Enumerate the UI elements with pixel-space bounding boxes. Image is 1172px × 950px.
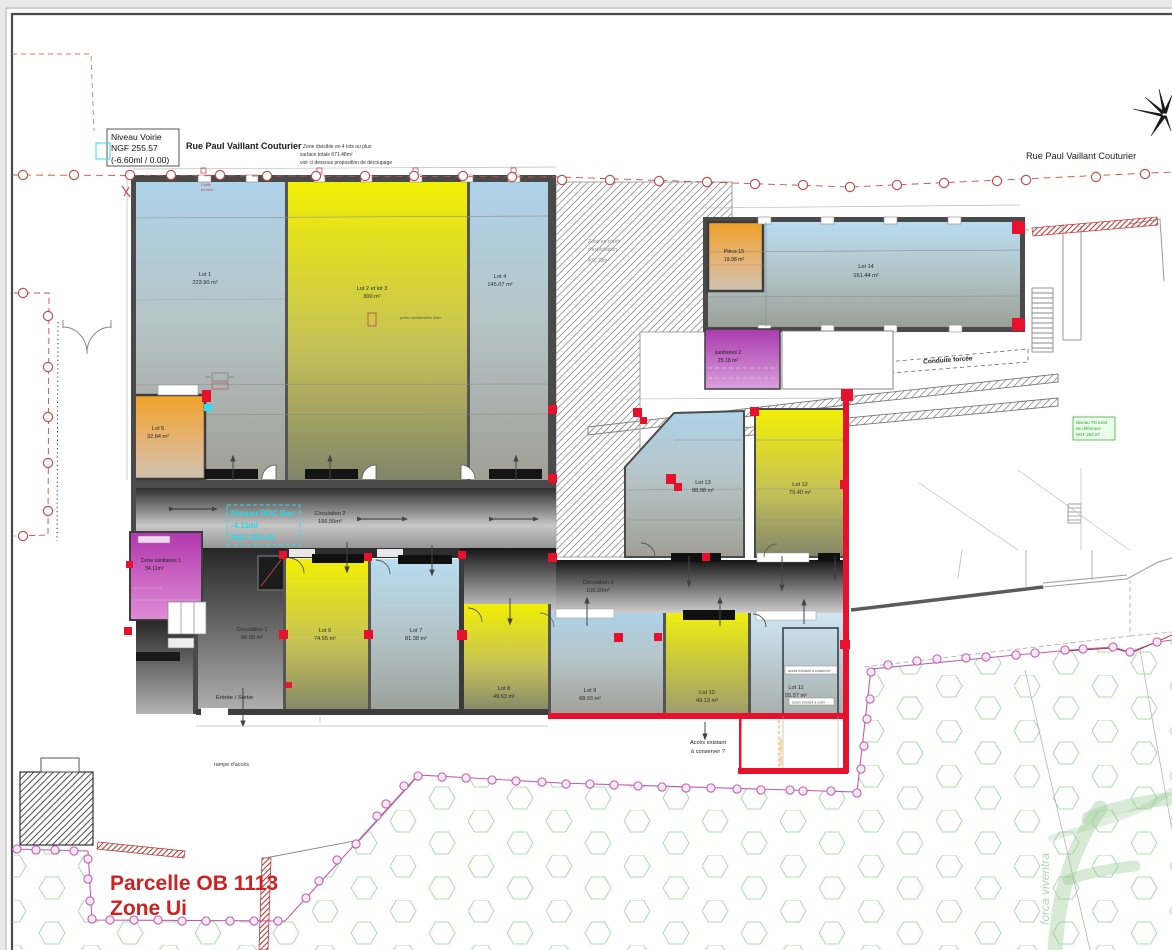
svg-text:Zone Ui: Zone Ui: [110, 897, 187, 920]
svg-text:NGF 259.46: NGF 259.46: [231, 533, 275, 542]
svg-text:166.50m²: 166.50m²: [318, 519, 342, 525]
svg-text:Lot 4: Lot 4: [494, 274, 506, 280]
svg-text:55.57 m²: 55.57 m²: [785, 693, 807, 699]
svg-text:-4.11ml: -4.11ml: [231, 521, 258, 530]
svg-text:145.07 m²: 145.07 m²: [487, 282, 512, 288]
svg-text:300 m²: 300 m²: [363, 294, 381, 300]
svg-text:Lot 12: Lot 12: [792, 482, 808, 488]
svg-text:471.73m²: 471.73m²: [588, 258, 609, 264]
svg-text:88.98 m²: 88.98 m²: [692, 488, 714, 494]
svg-text:Niveau RDC Bas: Niveau RDC Bas: [231, 509, 296, 518]
svg-text:Niveau Voirie: Niveau Voirie: [111, 132, 162, 142]
svg-text:223.90 m²: 223.90 m²: [192, 280, 217, 286]
svg-text:voir ci dessous proposition de: voir ci dessous proposition de découpage: [300, 160, 392, 166]
svg-text:Lot 10: Lot 10: [699, 690, 715, 696]
svg-text:d'exploitation: d'exploitation: [588, 247, 617, 253]
svg-text:accès existant à créer: accès existant à créer: [792, 701, 826, 705]
svg-text:Parcelle OB 1113: Parcelle OB 1113: [110, 872, 278, 895]
svg-text:Rue Paul Vaillant Couturier: Rue Paul Vaillant Couturier: [1026, 151, 1136, 161]
svg-text:Circulation 3: Circulation 3: [582, 580, 613, 586]
svg-text:161.44 m²: 161.44 m²: [853, 273, 878, 279]
svg-text:Lot 2 et lot 3: Lot 2 et lot 3: [357, 286, 388, 292]
svg-text:Zone divisible en 4 lots ou pl: Zone divisible en 4 lots ou plus: [303, 144, 372, 150]
svg-text:sanitaires 2: sanitaires 2: [715, 350, 742, 356]
svg-text:Circulation 1: Circulation 1: [236, 627, 267, 633]
svg-text:accès existant à conserver: accès existant à conserver: [788, 669, 831, 673]
svg-text:74.55 m²: 74.55 m²: [314, 636, 336, 642]
svg-text:Accès existant: Accès existant: [690, 740, 727, 746]
svg-text:forca viventra: forca viventra: [1038, 853, 1052, 925]
svg-text:Lot 8: Lot 8: [498, 686, 510, 692]
svg-text:Lot 1: Lot 1: [199, 272, 211, 278]
svg-text:Pièce 15: Pièce 15: [724, 249, 744, 255]
svg-text:Lot 5: Lot 5: [152, 426, 164, 432]
svg-text:limite existante: limite existante: [778, 738, 783, 765]
svg-text:Lot 6: Lot 6: [319, 628, 331, 634]
svg-text:Dche sanitaires 1: Dche sanitaires 1: [141, 558, 181, 564]
svg-text:Lot 7: Lot 7: [410, 628, 422, 634]
svg-text:19.98 m²: 19.98 m²: [724, 257, 745, 263]
svg-text:68.93 m²: 68.93 m²: [579, 696, 601, 702]
svg-text:à conserver ?: à conserver ?: [691, 749, 725, 755]
svg-text:NGF 262.57: NGF 262.57: [1076, 432, 1100, 437]
svg-text:Lot 13: Lot 13: [695, 480, 711, 486]
svg-text:Lot 9: Lot 9: [584, 688, 596, 694]
svg-text:Lot 14: Lot 14: [858, 264, 874, 270]
svg-text:portes sectionnelles 4x4m: portes sectionnelles 4x4m: [400, 316, 442, 320]
svg-text:32.84 m²: 32.84 m²: [147, 434, 169, 440]
svg-text:NGF 255.57: NGF 255.57: [111, 143, 158, 153]
svg-text:rampe d'accès: rampe d'accès: [214, 762, 249, 768]
svg-text:de référence: de référence: [1076, 426, 1101, 431]
svg-text:66.00 m²: 66.00 m²: [241, 635, 263, 641]
svg-text:Lot 11: Lot 11: [788, 685, 803, 691]
svg-text:surface totale 671.48m²: surface totale 671.48m²: [300, 152, 353, 158]
svg-text:Circulation 2: Circulation 2: [314, 511, 345, 517]
svg-text:106.50m²: 106.50m²: [586, 588, 610, 594]
svg-text:49.13 m²: 49.13 m²: [696, 698, 718, 704]
svg-text:(-6.60ml / 0.00): (-6.60ml / 0.00): [111, 155, 169, 165]
svg-text:tel fibre: tel fibre: [201, 188, 213, 192]
svg-text:49.63 m²: 49.63 m²: [493, 694, 515, 700]
svg-text:Zone en cours: Zone en cours: [587, 239, 620, 245]
svg-text:25.18 m²: 25.18 m²: [718, 358, 739, 364]
svg-text:79.40 m²: 79.40 m²: [789, 490, 811, 496]
svg-text:Rue Paul Vaillant Couturier: Rue Paul Vaillant Couturier: [186, 141, 302, 151]
svg-text:Cable: Cable: [201, 183, 211, 187]
svg-text:34.11m²: 34.11m²: [145, 566, 164, 572]
svg-text:81.38 m²: 81.38 m²: [405, 636, 427, 642]
svg-text:Niveau TN exist: Niveau TN exist: [1076, 420, 1108, 425]
svg-text:Entrée / Sortie: Entrée / Sortie: [216, 695, 253, 701]
